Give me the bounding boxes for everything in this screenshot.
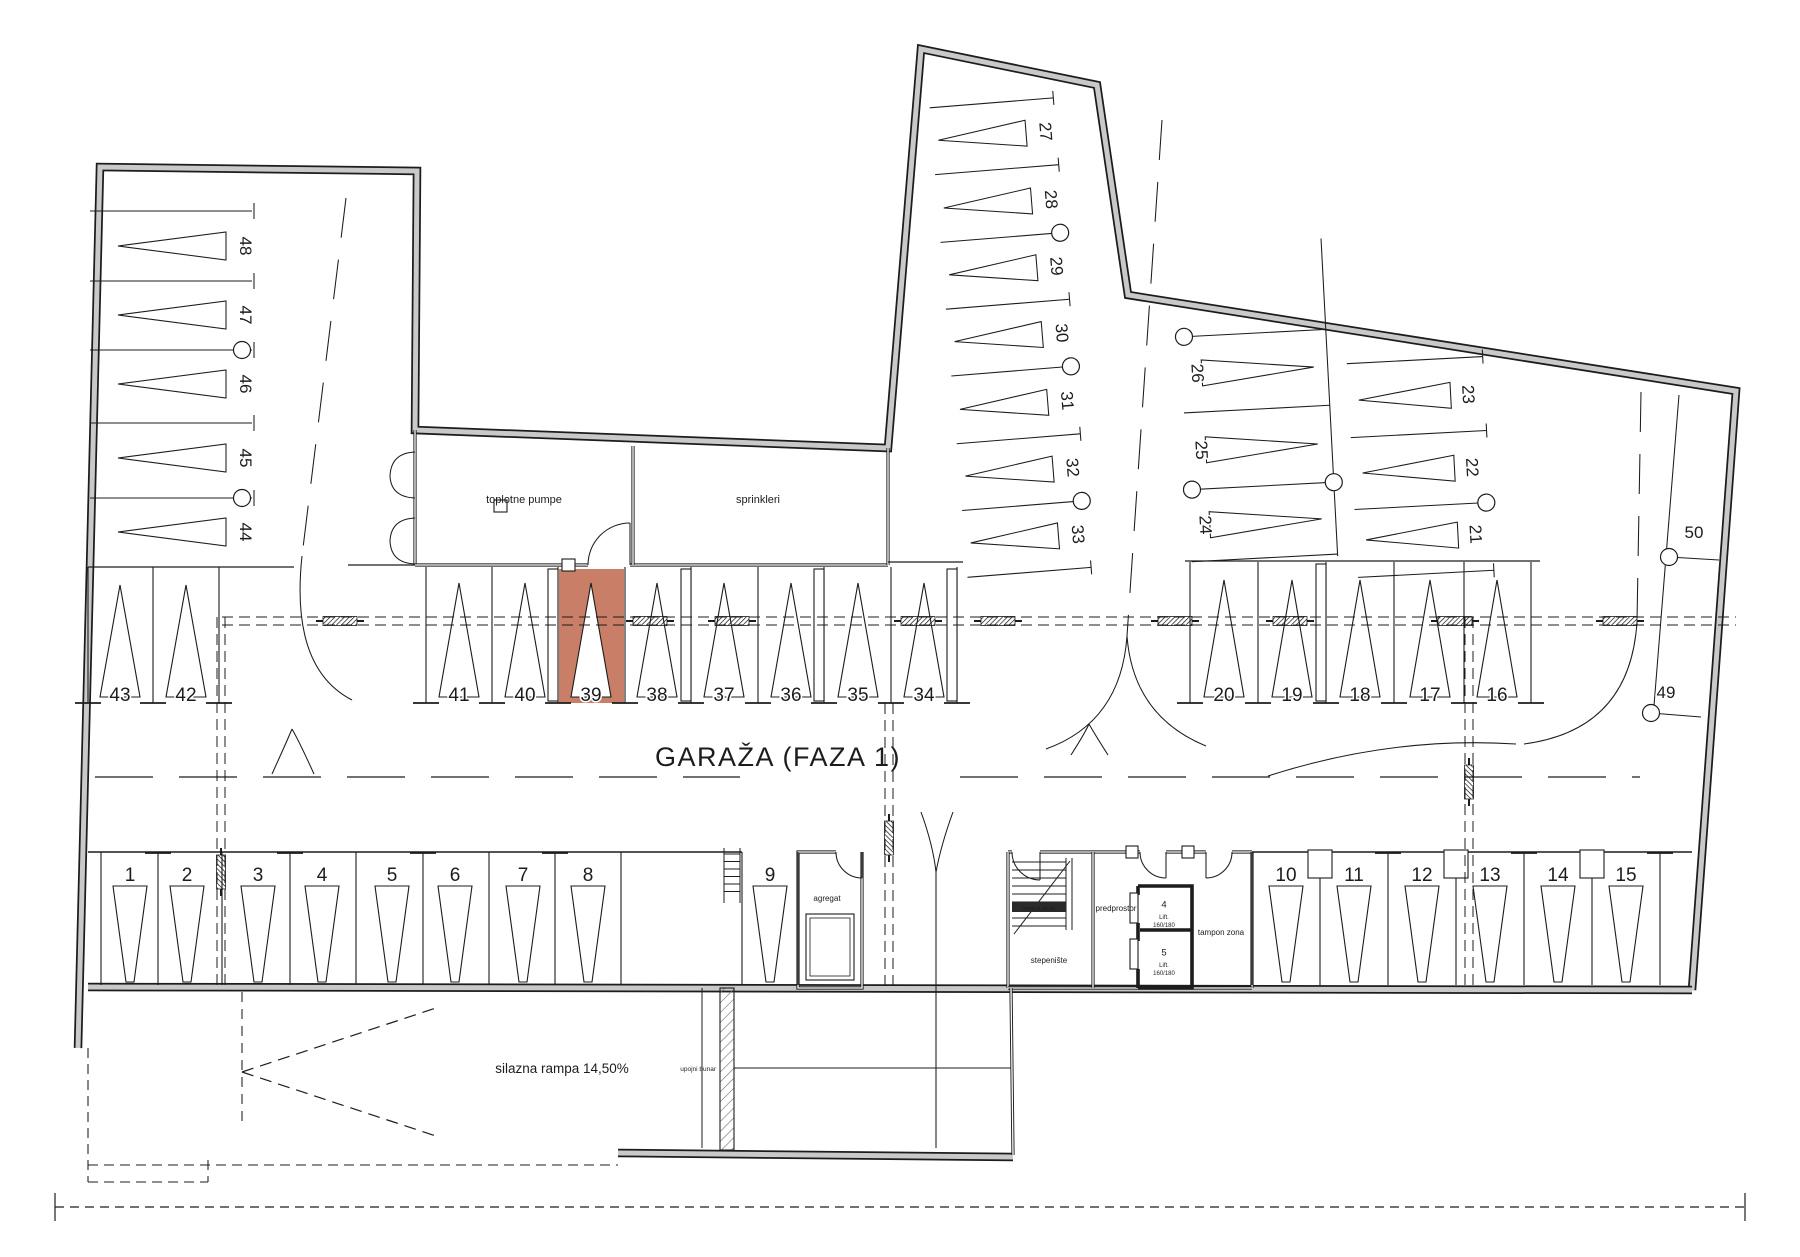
stall-number-36: 36 xyxy=(780,685,801,706)
parking-stall-wedge xyxy=(753,886,787,982)
stall-number-23: 23 xyxy=(1458,384,1478,404)
pilaster xyxy=(1182,846,1194,858)
stall-number-44: 44 xyxy=(236,523,255,542)
joint-hatch-symbol xyxy=(1151,617,1199,626)
stall-number-35: 35 xyxy=(847,685,868,706)
parking-stall-wedge xyxy=(1340,580,1380,697)
aisle-center-line xyxy=(302,198,346,556)
stall-number-49: 49 xyxy=(1657,683,1676,702)
walls-layer xyxy=(78,49,1736,1157)
stall-number-4: 4 xyxy=(317,865,328,886)
door-arc xyxy=(836,852,862,878)
lift4-number: 4 xyxy=(1161,900,1166,911)
well-label: upojni bunar xyxy=(680,1066,717,1073)
parking-stall-wedge xyxy=(704,583,744,697)
parking-stall-wedge xyxy=(964,456,1054,489)
stall-number-29: 29 xyxy=(1046,256,1066,276)
stall-number-26: 26 xyxy=(1187,363,1207,383)
parking-stall-wedge xyxy=(1541,886,1575,982)
stall-number-38: 38 xyxy=(646,685,667,706)
parking-stall-wedge xyxy=(505,583,545,697)
parking-stall-wedge xyxy=(959,389,1049,422)
column xyxy=(548,569,558,701)
stall-number-46: 46 xyxy=(236,375,255,394)
stall-number-1: 1 xyxy=(125,865,136,886)
stall-number-3: 3 xyxy=(253,865,264,886)
ramp-label: silazna rampa 14,50% xyxy=(495,1061,629,1076)
lift5-size: 160/180 xyxy=(1153,971,1175,977)
ramp-direction-arrow xyxy=(242,1072,436,1136)
parking-stall-wedge xyxy=(838,583,878,697)
stall-number-15: 15 xyxy=(1615,865,1636,886)
joint-hatch-symbol xyxy=(1431,617,1479,626)
room-label-staircase: stepenište xyxy=(1031,956,1068,965)
stall-number-50: 50 xyxy=(1685,523,1704,542)
right-outer-stalls: 232221 xyxy=(1346,349,1498,584)
column-circle xyxy=(1661,549,1678,566)
floor-plan-page: 27282930313233262524232221 4342414039383… xyxy=(0,0,1800,1257)
stall-number-10: 10 xyxy=(1275,865,1296,886)
column xyxy=(947,569,957,701)
parking-stall-wedge xyxy=(1337,886,1371,982)
stall-divider xyxy=(941,232,1065,242)
parking-stall-wedge xyxy=(1358,382,1451,413)
stall-divider xyxy=(962,501,1086,511)
ramp-direction-arrow xyxy=(242,1008,436,1072)
parking-stall-wedge xyxy=(904,583,944,697)
parking-stall-wedge xyxy=(118,370,226,398)
stall-number-31: 31 xyxy=(1057,391,1077,411)
parking-stall-wedge xyxy=(118,301,226,329)
joint-hatch-symbol xyxy=(1465,758,1474,806)
stall-number-8: 8 xyxy=(583,865,594,886)
stall-divider xyxy=(1355,502,1491,509)
parking-stall-wedge xyxy=(1365,522,1458,553)
garage-floor-plan: 27282930313233262524232221 4342414039383… xyxy=(0,0,1800,1257)
column-circle xyxy=(234,490,251,507)
stall-number-25: 25 xyxy=(1191,440,1211,460)
column-circle xyxy=(1175,328,1193,346)
column xyxy=(1580,850,1604,878)
stall-divider xyxy=(951,366,1075,376)
joint-hatch-symbol xyxy=(626,617,674,626)
stalls-layer: 27282930313233262524232221 xyxy=(75,91,1719,985)
parking-stall-wedge xyxy=(571,886,605,982)
parking-stall-wedge xyxy=(439,583,479,697)
stall-number-30: 30 xyxy=(1051,323,1071,343)
plan-title: GARAŽA (FAZA 1) xyxy=(655,741,901,772)
pilaster xyxy=(562,559,575,571)
column-circle xyxy=(1477,494,1495,512)
aisle-center-line xyxy=(1637,392,1641,622)
parking-stall-wedge xyxy=(166,585,206,697)
lane-curve xyxy=(300,556,352,700)
lift4-label: Lift. xyxy=(1159,915,1169,921)
column-circle xyxy=(1051,224,1069,242)
door-arc xyxy=(390,518,415,541)
room-label-stair-booth: stanica za pp xyxy=(1023,906,1055,912)
room-label-generator: agregat xyxy=(813,894,841,903)
joint-hatch-symbol xyxy=(217,848,226,896)
lift5-number: 5 xyxy=(1161,948,1166,959)
stall-number-39: 39 xyxy=(580,685,601,706)
column xyxy=(681,569,691,701)
parking-stall-wedge xyxy=(1410,580,1450,697)
stall-number-14: 14 xyxy=(1547,865,1569,886)
stall-number-6: 6 xyxy=(450,865,461,886)
door-arc xyxy=(390,476,415,498)
column xyxy=(1308,850,1332,878)
lane-curve xyxy=(1524,622,1637,744)
column xyxy=(814,569,824,701)
generator-unit xyxy=(806,914,854,980)
stall-divider xyxy=(946,299,1070,309)
stall-number-12: 12 xyxy=(1411,865,1432,886)
stall-divider xyxy=(1351,430,1487,437)
column-circle xyxy=(1325,473,1343,491)
stall-number-21: 21 xyxy=(1465,524,1485,544)
parking-stall-wedge xyxy=(1209,506,1322,538)
stall-divider xyxy=(1180,329,1326,337)
room-label-buffer-zone: tampon zona xyxy=(1198,928,1245,937)
parking-stall-wedge xyxy=(943,188,1033,221)
right-inner-stalls: 262524 xyxy=(1171,238,1346,564)
stall-divider xyxy=(1347,357,1483,364)
joint-hatch-symbol xyxy=(1596,617,1644,626)
details-layer xyxy=(390,452,1232,1150)
lift4-size: 160/180 xyxy=(1153,923,1175,929)
stall-number-22: 22 xyxy=(1462,457,1482,477)
column-circle xyxy=(1643,705,1660,722)
parking-stall-wedge xyxy=(118,232,226,260)
stall-divider xyxy=(935,165,1059,175)
stall-number-47: 47 xyxy=(236,306,255,325)
stall-number-19: 19 xyxy=(1281,685,1302,706)
stall-number-41: 41 xyxy=(448,685,469,706)
joint-hatch-symbol xyxy=(316,617,364,626)
stall-divider xyxy=(968,567,1092,577)
stall-number-13: 13 xyxy=(1479,865,1500,886)
stall-number-40: 40 xyxy=(514,685,535,706)
stall-number-45: 45 xyxy=(236,449,255,468)
parking-stall-wedge xyxy=(1201,354,1314,386)
door-arc xyxy=(1206,852,1232,878)
parking-stall-wedge xyxy=(241,886,275,982)
parking-stall-wedge xyxy=(948,255,1038,288)
top-wing-stalls: 27282930313233 xyxy=(929,91,1096,585)
column-circle xyxy=(234,342,251,359)
parking-stall-wedge xyxy=(970,523,1060,556)
stall-number-17: 17 xyxy=(1419,685,1440,706)
parking-stall-wedge xyxy=(506,886,540,982)
parking-stall-wedge xyxy=(637,583,677,697)
pilaster xyxy=(1126,846,1138,858)
room-label-sprinklers: sprinkleri xyxy=(736,494,780,506)
stall-number-27: 27 xyxy=(1035,121,1055,141)
parking-stall-wedge xyxy=(1473,886,1507,982)
stall-number-33: 33 xyxy=(1068,524,1088,544)
lane-merge-mark xyxy=(272,729,314,774)
joint-hatch-symbol xyxy=(894,617,942,626)
joint-hatch-symbol xyxy=(1266,617,1314,626)
parking-stall-wedge xyxy=(1477,580,1517,697)
stall-number-37: 37 xyxy=(713,685,734,706)
stall-number-32: 32 xyxy=(1062,457,1082,477)
parking-stall-wedge xyxy=(118,444,226,472)
joint-hatch-symbol xyxy=(708,617,756,626)
stair-cut-line xyxy=(1014,861,1070,934)
parking-stall-wedge xyxy=(113,886,147,982)
column-circle xyxy=(1062,357,1080,375)
stall-number-18: 18 xyxy=(1349,685,1370,706)
parking-stall-wedge xyxy=(937,120,1027,153)
parking-stall-wedge xyxy=(1272,580,1312,697)
stall-divider xyxy=(1184,405,1330,413)
column xyxy=(1444,850,1468,878)
drain-well-shaft xyxy=(720,988,734,1150)
door-arc xyxy=(1012,852,1040,880)
stall-number-34: 34 xyxy=(913,685,935,706)
interior-wall xyxy=(798,852,862,988)
stall-number-42: 42 xyxy=(175,685,196,706)
stall-divider xyxy=(1188,482,1334,490)
column-circle xyxy=(1183,481,1201,499)
lane-merge-mark xyxy=(921,812,953,872)
parking-stall-wedge xyxy=(1362,455,1455,486)
lift5-label: Lift. xyxy=(1159,963,1169,969)
stall-number-43: 43 xyxy=(109,685,130,706)
stall-number-7: 7 xyxy=(518,865,529,886)
parking-stall-wedge xyxy=(438,886,472,982)
stall-divider xyxy=(930,98,1054,108)
parking-stall-wedge xyxy=(305,886,339,982)
joint-hatch-symbol xyxy=(885,814,894,862)
stall-number-16: 16 xyxy=(1486,685,1507,706)
stall-number-28: 28 xyxy=(1041,189,1061,209)
door-arc xyxy=(1140,852,1166,878)
joint-hatch-symbol xyxy=(974,617,1022,626)
parking-stall-wedge xyxy=(118,518,226,546)
stall-number-11: 11 xyxy=(1344,865,1364,886)
stall-number-9: 9 xyxy=(765,865,776,886)
lane-curve xyxy=(1046,636,1127,749)
lift-door xyxy=(1130,939,1138,969)
stall-number-48: 48 xyxy=(236,237,255,256)
parking-stall-wedge xyxy=(375,886,409,982)
parking-stall-wedge xyxy=(771,583,811,697)
stall-divider xyxy=(1358,570,1494,577)
parking-stall-wedge xyxy=(1204,580,1244,697)
column-circle xyxy=(1073,492,1091,510)
room-label-vestibule: predprostor xyxy=(1096,904,1137,913)
parking-stall-wedge xyxy=(954,322,1044,355)
door-arc xyxy=(588,523,630,565)
parking-stall-wedge xyxy=(170,886,204,982)
lane-curve xyxy=(1127,636,1206,746)
aisle-center-line xyxy=(1127,120,1162,636)
stall-number-24: 24 xyxy=(1195,515,1215,535)
door-arc xyxy=(390,541,415,564)
stall-number-20: 20 xyxy=(1213,685,1234,706)
room-label-heat-pumps: toplotne pumpe xyxy=(486,494,562,506)
parking-stall-wedge xyxy=(1609,886,1643,982)
door-arc xyxy=(390,452,415,476)
parking-stall-wedge xyxy=(1405,886,1439,982)
column xyxy=(1316,564,1326,701)
lane-curve xyxy=(1268,743,1516,776)
stall-divider xyxy=(957,434,1081,444)
parking-stall-wedge xyxy=(1269,886,1303,982)
parking-stall-wedge xyxy=(100,585,140,697)
lane-merge-mark xyxy=(1071,724,1108,755)
stall-number-2: 2 xyxy=(182,865,193,886)
parking-stall-wedge xyxy=(1205,431,1318,463)
stall-number-5: 5 xyxy=(387,865,398,886)
